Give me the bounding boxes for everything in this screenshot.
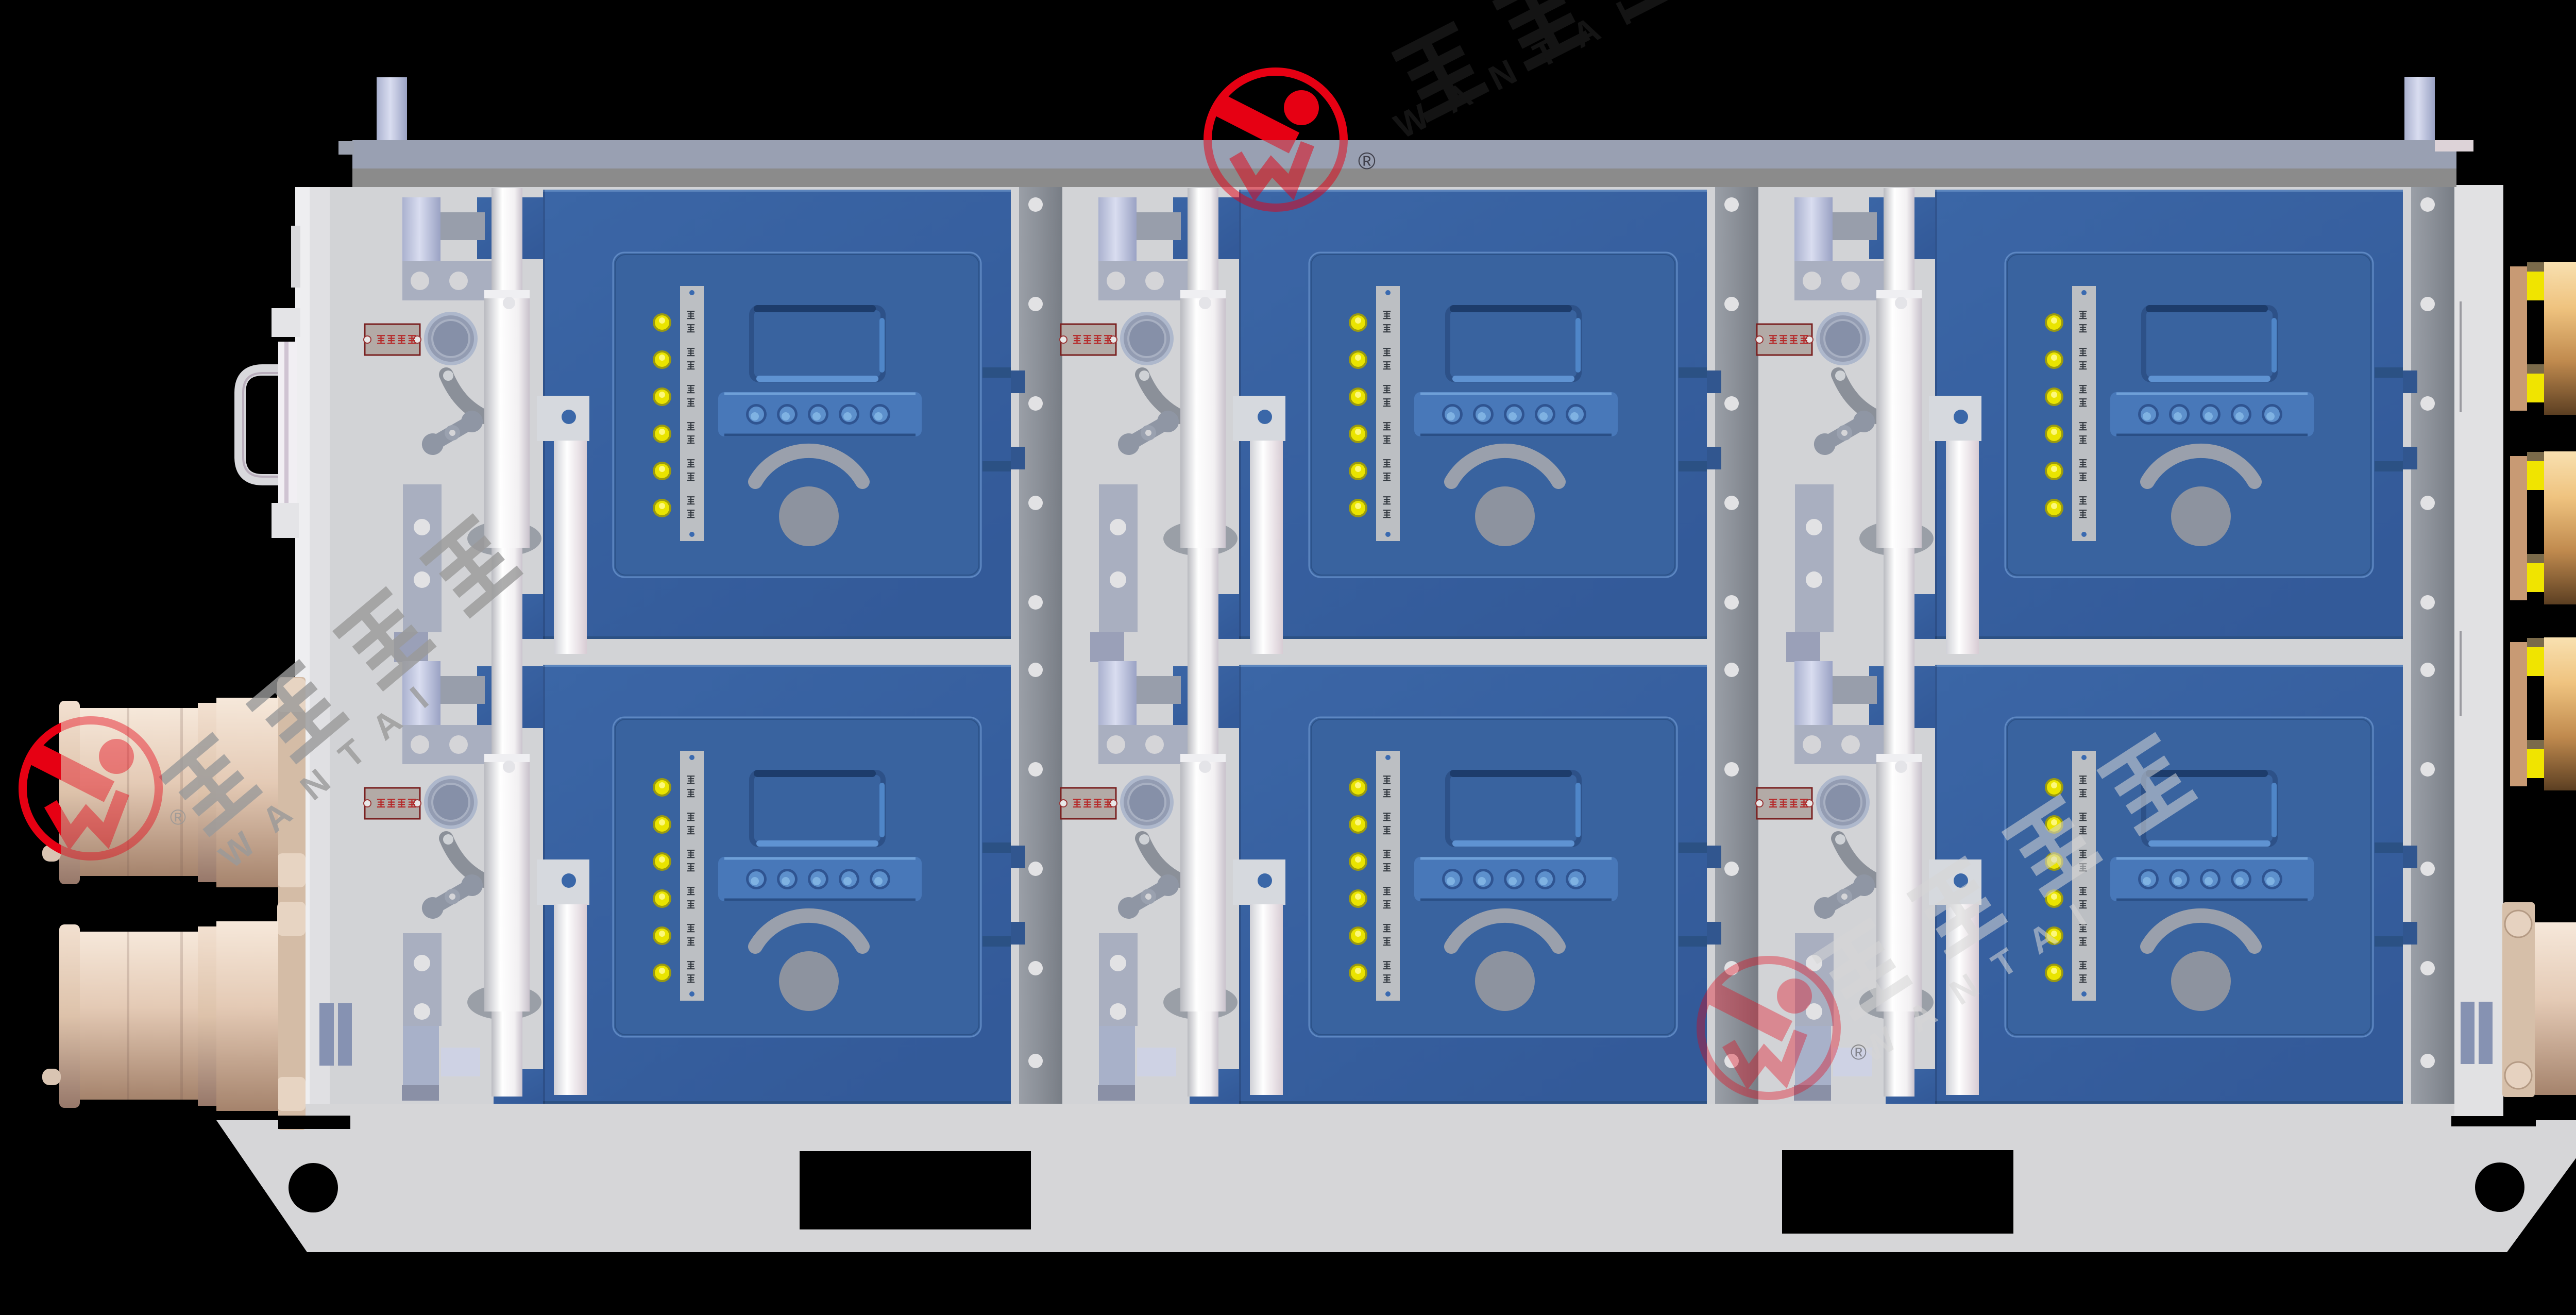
svg-text:®: ® <box>1851 1040 1867 1064</box>
svg-text:®: ® <box>1358 147 1376 174</box>
svg-text:®: ® <box>170 805 186 829</box>
